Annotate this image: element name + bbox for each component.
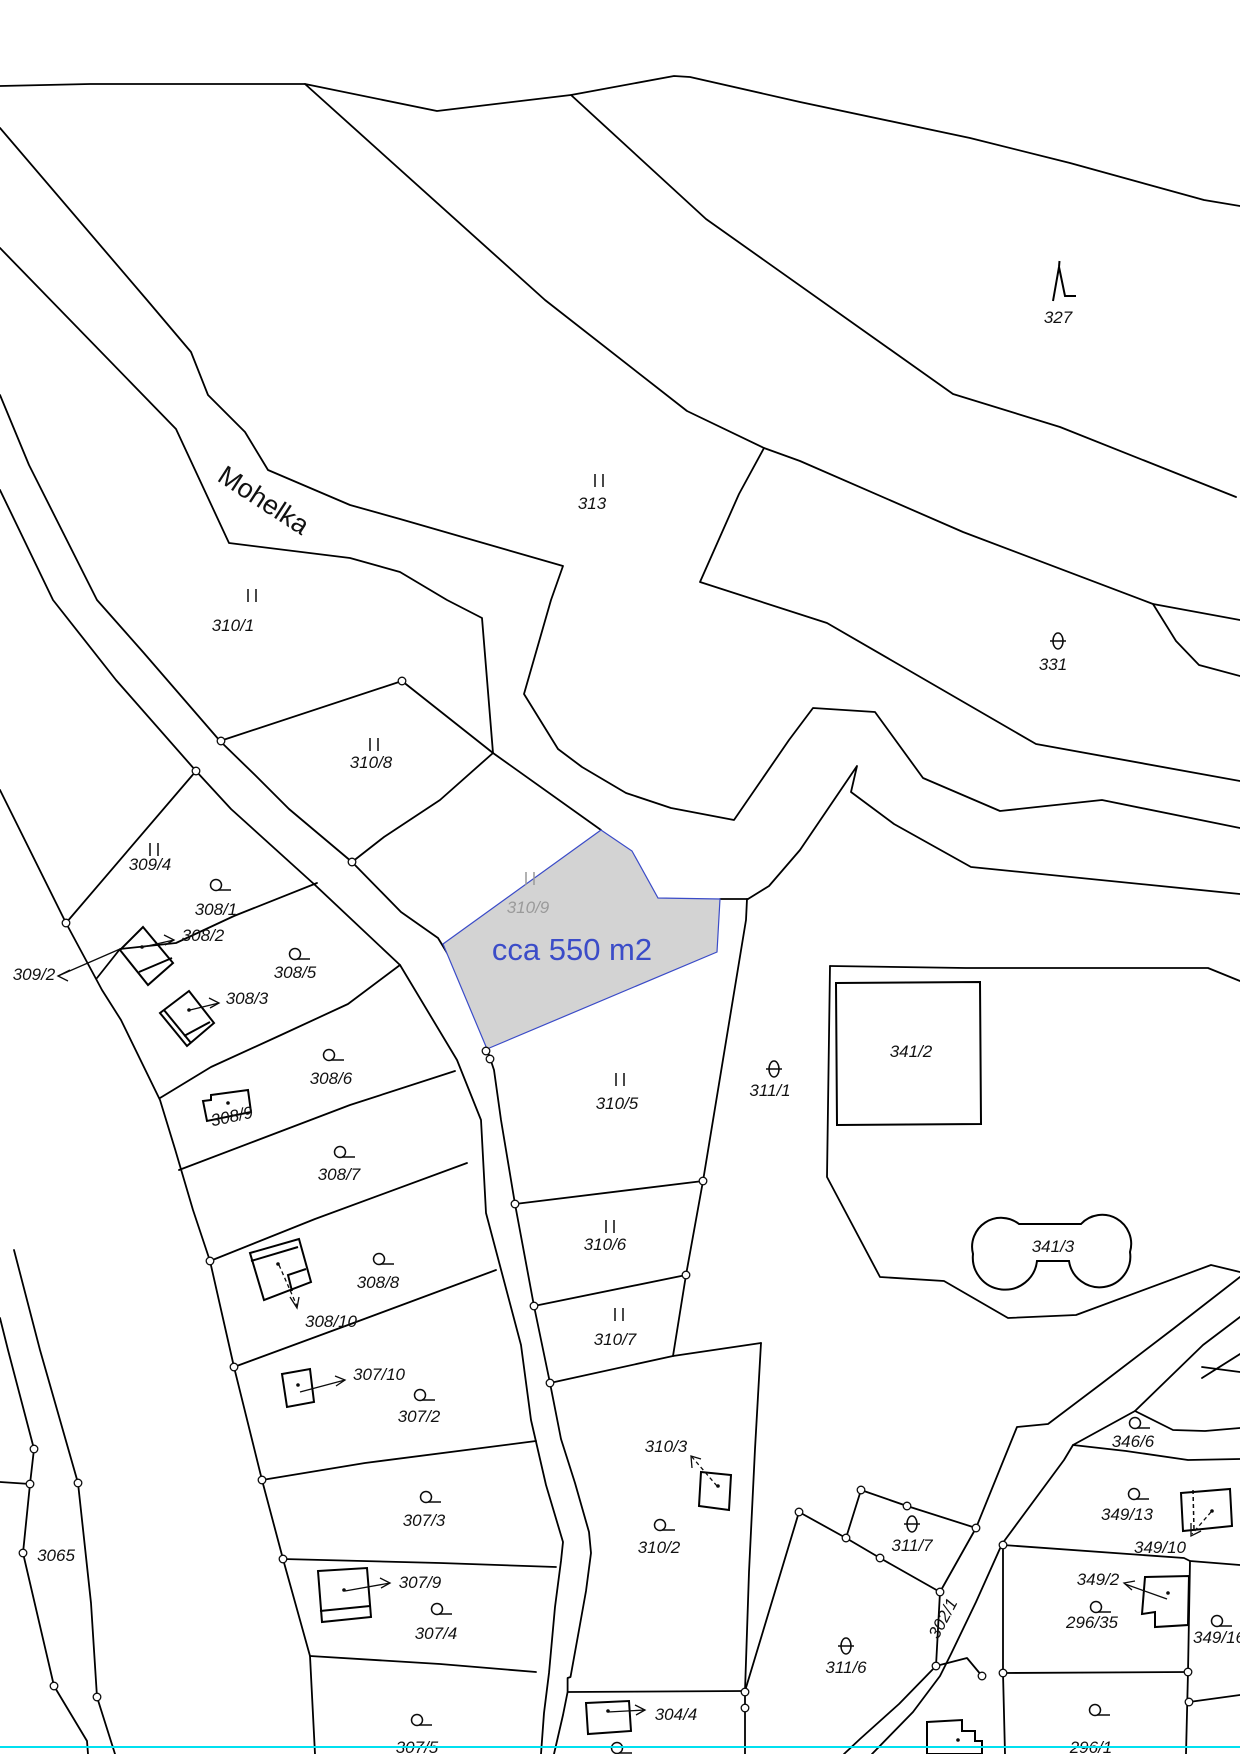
svg-text:341/3: 341/3 (1032, 1237, 1075, 1256)
svg-text:307/9: 307/9 (399, 1573, 442, 1592)
svg-text:308/8: 308/8 (357, 1273, 400, 1292)
svg-text:310/3: 310/3 (645, 1437, 688, 1456)
svg-text:341/2: 341/2 (890, 1042, 933, 1061)
svg-text:310/6: 310/6 (584, 1235, 627, 1254)
svg-text:311/7: 311/7 (891, 1536, 933, 1555)
svg-text:307/2: 307/2 (398, 1407, 441, 1426)
svg-text:307/10: 307/10 (353, 1365, 406, 1384)
svg-text:308/3: 308/3 (226, 989, 269, 1008)
svg-text:309/4: 309/4 (129, 855, 172, 874)
svg-text:331: 331 (1039, 655, 1067, 674)
svg-text:309/2: 309/2 (13, 965, 56, 984)
svg-text:308/7: 308/7 (318, 1165, 361, 1184)
svg-text:296/35: 296/35 (1065, 1613, 1119, 1632)
svg-text:307/4: 307/4 (415, 1624, 458, 1643)
svg-text:310/5: 310/5 (596, 1094, 639, 1113)
svg-text:3065: 3065 (37, 1546, 75, 1565)
svg-text:349/10: 349/10 (1134, 1538, 1187, 1557)
svg-text:311/6: 311/6 (825, 1658, 867, 1677)
svg-text:310/2: 310/2 (638, 1538, 681, 1557)
svg-text:327: 327 (1044, 308, 1073, 327)
svg-text:308/5: 308/5 (274, 963, 317, 982)
svg-text:311/1: 311/1 (749, 1081, 790, 1100)
svg-text:308/6: 308/6 (310, 1069, 353, 1088)
svg-text:313: 313 (578, 494, 607, 513)
svg-text:308/1: 308/1 (195, 900, 238, 919)
svg-text:308/10: 308/10 (305, 1312, 358, 1331)
svg-text:cca 550 m2: cca 550 m2 (492, 932, 652, 967)
svg-text:307/3: 307/3 (403, 1511, 446, 1530)
svg-text:349/16: 349/16 (1193, 1628, 1240, 1647)
svg-text:349/13: 349/13 (1101, 1505, 1154, 1524)
svg-text:310/9: 310/9 (507, 898, 550, 917)
svg-text:346/6: 346/6 (1112, 1432, 1155, 1451)
svg-text:310/1: 310/1 (212, 616, 255, 635)
svg-text:310/7: 310/7 (594, 1330, 637, 1349)
svg-text:310/8: 310/8 (350, 753, 393, 772)
svg-text:349/2: 349/2 (1077, 1570, 1120, 1589)
svg-text:304/4: 304/4 (655, 1705, 698, 1724)
svg-text:308/2: 308/2 (182, 926, 225, 945)
